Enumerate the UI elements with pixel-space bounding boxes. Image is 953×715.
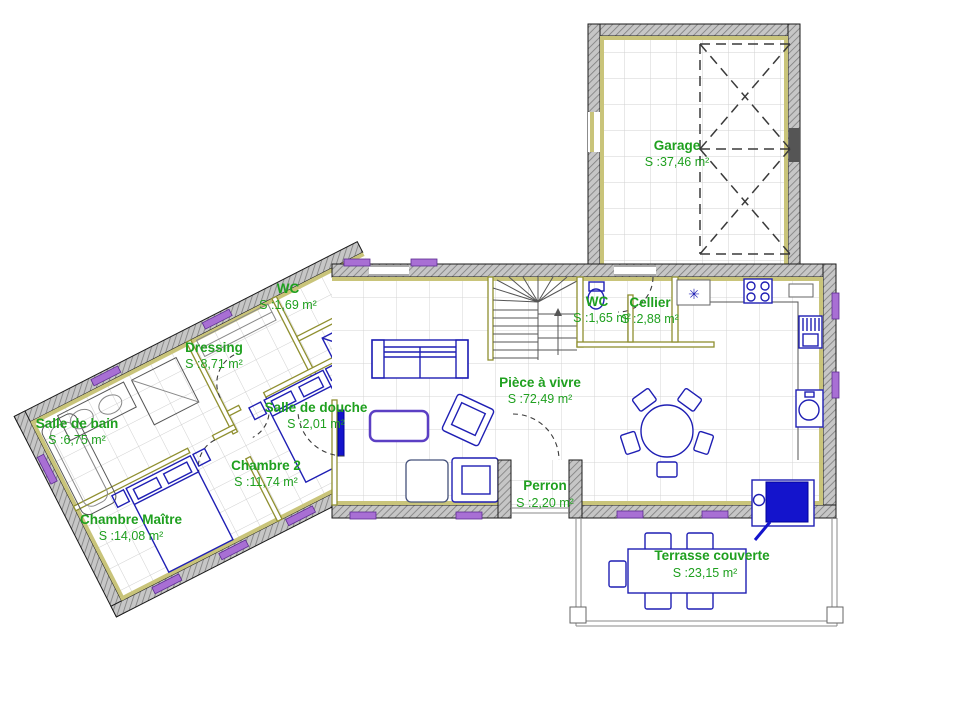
window-icon (456, 512, 482, 519)
room-area-garage: S :37,46 m² (645, 155, 710, 169)
floor-plan-svg: ✳ (0, 0, 953, 715)
sink-icon (796, 390, 823, 427)
room-label-perron: Perron (523, 478, 567, 493)
room-label-wc-wing: WC (277, 281, 300, 296)
stove-icon (744, 279, 772, 303)
room-label-terrasse: Terrasse couverte (654, 548, 770, 563)
room-area-salle-de-bain: S :6,75 m² (48, 433, 106, 447)
room-area-wc-wing: S :1,69 m² (259, 298, 317, 312)
garage-side-door (789, 128, 800, 162)
terrace-post (827, 607, 843, 623)
window-icon (617, 511, 643, 518)
terrace-post (570, 607, 586, 623)
partition (332, 400, 337, 505)
room-label-piece-a-vivre: Pièce à vivre (499, 375, 581, 390)
floor-plan: ✳ (0, 0, 953, 715)
room-label-chambre-maitre: Chambre Maître (80, 512, 183, 527)
room-label-salle-de-douche: Salle de douche (265, 400, 368, 415)
garage-wall-liner (600, 36, 788, 40)
window-icon (702, 511, 728, 518)
room-label-garage: Garage (654, 138, 701, 153)
appliance-star-icon: ✳ (688, 287, 700, 303)
corner-cabinet (789, 284, 813, 297)
room-area-terrasse: S :23,15 m² (673, 566, 738, 580)
room-label-dressing: Dressing (185, 340, 243, 355)
room-area-cellier: S :2,88 m² (621, 312, 679, 326)
room-area-chambre-maitre: S :14,08 m² (99, 529, 164, 543)
room-label-wc-main: WC (586, 294, 609, 309)
garage-to-cellier-opening (614, 265, 656, 276)
room-label-cellier: Cellier (629, 295, 671, 310)
window-icon (411, 259, 437, 266)
side-table (406, 460, 448, 502)
window-icon (832, 293, 839, 319)
terrace-chair (645, 592, 671, 609)
room-area-dressing: S :8,71 m² (185, 357, 243, 371)
garage-west-opening-liner (590, 112, 594, 152)
window-icon (832, 372, 839, 398)
coffee-table (370, 411, 428, 441)
terrace-chair (687, 592, 713, 609)
window-icon (350, 512, 376, 519)
garage-wall-north (588, 24, 800, 36)
room-area-salle-de-douche: S :2,01 m² (287, 417, 345, 431)
room-label-salle-de-bain: Salle de bain (36, 416, 119, 431)
terrace-chair (609, 561, 626, 587)
north-wall-opening (369, 265, 409, 276)
fridge-icon (799, 316, 822, 348)
armchair (452, 458, 498, 502)
window-icon (344, 259, 370, 266)
room-area-perron: S :2,20 m² (516, 496, 574, 510)
sofa (372, 340, 468, 378)
room-area-chambre-2: S :11,74 m² (234, 475, 298, 489)
garage-wall-liner (600, 40, 604, 264)
room-label-chambre-2: Chambre 2 (231, 458, 301, 473)
room-area-piece-a-vivre: S :72,49 m² (508, 392, 573, 406)
bbq-grill (752, 480, 814, 540)
